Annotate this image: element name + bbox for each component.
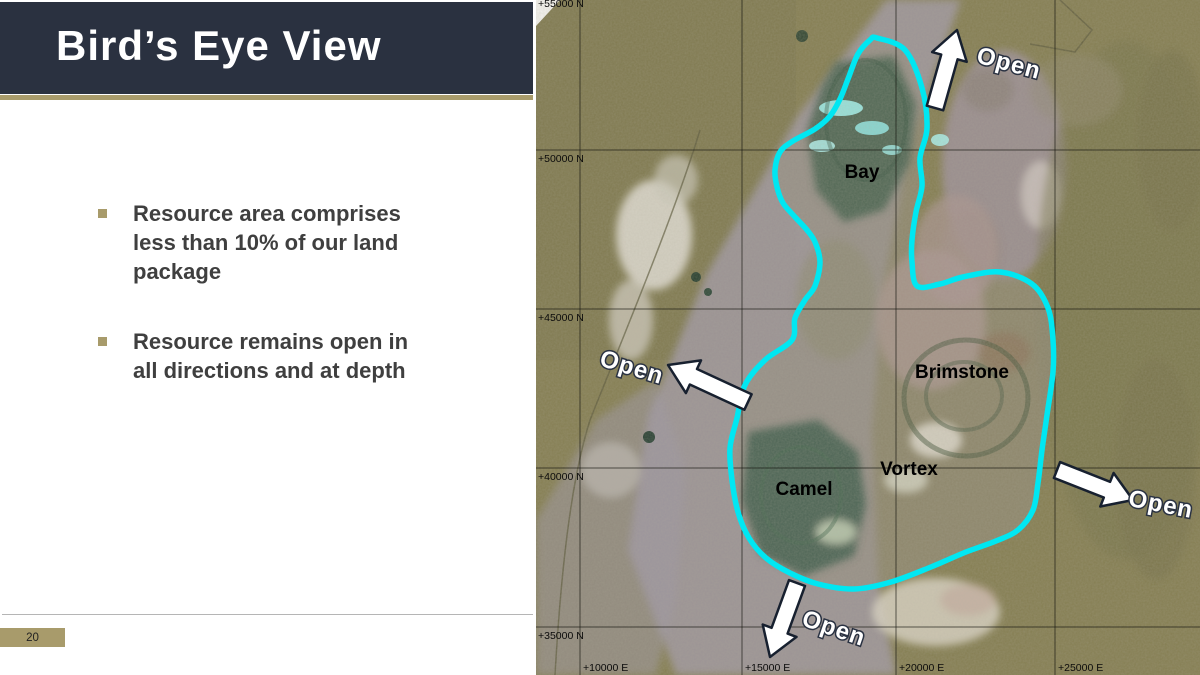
pit-label-brimstone: Brimstone — [915, 362, 1009, 383]
title-bar: Bird’s Eye View — [0, 2, 533, 94]
northing-label: +45000 N — [538, 312, 584, 324]
bullet-item: Resource remains open in all directions … — [98, 327, 470, 385]
bullet-text: Resource area comprises less than 10% of… — [133, 201, 401, 284]
northing-label: +35000 N — [538, 630, 584, 642]
slide-title: Bird’s Eye View — [56, 22, 382, 70]
footer-divider — [2, 614, 533, 615]
easting-label: +10000 E — [583, 662, 628, 674]
pit-label-bay: Bay — [845, 162, 880, 183]
satellite-map: +55000 N+50000 N+45000 N+40000 N+35000 N… — [536, 0, 1200, 675]
bullet-square-icon — [98, 209, 107, 218]
easting-label: +20000 E — [899, 662, 944, 674]
map-panel: +55000 N+50000 N+45000 N+40000 N+35000 N… — [536, 0, 1200, 675]
easting-label: +25000 E — [1058, 662, 1103, 674]
bullet-square-icon — [98, 337, 107, 346]
pit-label-camel: Camel — [775, 479, 832, 500]
page-number: 20 — [26, 632, 39, 644]
northing-label: +55000 N — [538, 0, 584, 10]
page-number-badge: 20 — [0, 628, 65, 647]
title-underline — [0, 95, 533, 100]
bullet-list: Resource area comprises less than 10% of… — [98, 199, 470, 426]
terrain-art — [536, 0, 1200, 675]
northing-label: +40000 N — [538, 471, 584, 483]
easting-label: +15000 E — [745, 662, 790, 674]
bullet-item: Resource area comprises less than 10% of… — [98, 199, 470, 286]
slide-root: Bird’s Eye View Resource area comprises … — [0, 0, 1200, 675]
pit-label-vortex: Vortex — [880, 459, 938, 480]
bullet-text: Resource remains open in all directions … — [133, 329, 408, 383]
northing-label: +50000 N — [538, 153, 584, 165]
